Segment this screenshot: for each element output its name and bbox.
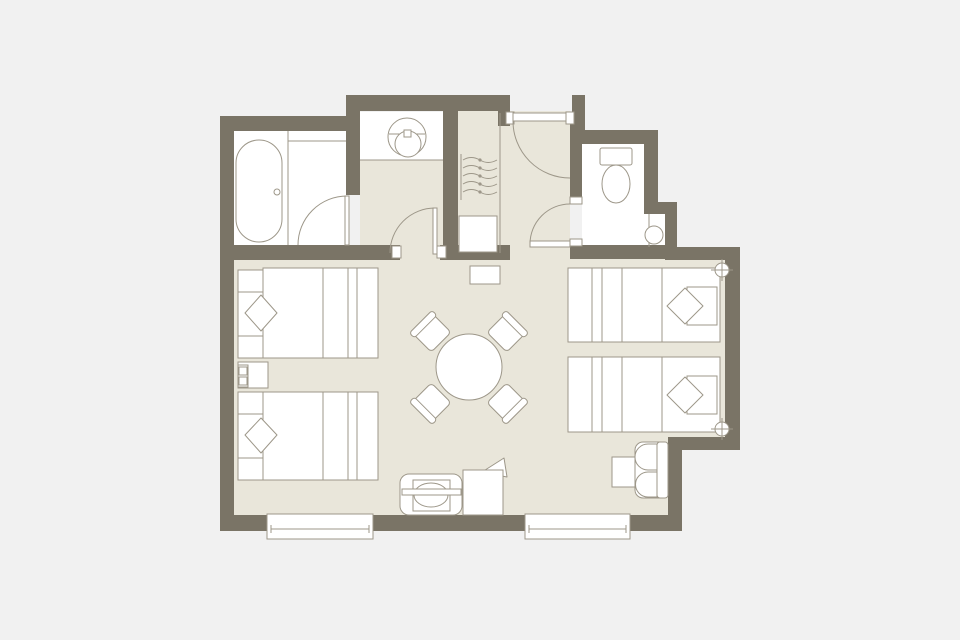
vanity-floor [360, 155, 443, 255]
toilet-bowl [602, 165, 630, 203]
chair-body [463, 470, 503, 515]
bathtub [236, 140, 282, 242]
wall-closet-left [443, 111, 458, 260]
side-table [612, 457, 635, 487]
nightstand [238, 362, 268, 388]
toiletroom-door-jamb-bottom [570, 239, 582, 246]
hanger-hook [478, 174, 481, 177]
wall-toiletroom-bottom [582, 245, 665, 259]
shoe-cabinet [470, 266, 500, 284]
wall-top-left [220, 116, 360, 131]
toilet-tank [600, 148, 632, 165]
bed-body [263, 268, 378, 358]
hand-basin [645, 226, 663, 244]
vanity-faucet [404, 130, 411, 137]
window-left [267, 514, 373, 539]
round-table [436, 334, 502, 400]
floor-plan-drawing [0, 0, 960, 640]
armchair-cushion [636, 472, 658, 497]
luggage-bench [400, 474, 462, 515]
wall-left [220, 116, 234, 531]
floor-plan-canvas [0, 0, 960, 640]
double-bed-1 [238, 268, 378, 358]
vanity-door-leaf [433, 208, 437, 254]
hanger-hook [478, 166, 481, 169]
twin-bed-1 [568, 268, 720, 342]
armchair-cushion [635, 444, 657, 470]
entry-door-leaf [513, 113, 566, 121]
toiletroom-door-jamb-top [570, 197, 582, 204]
double-bed-2 [238, 392, 378, 480]
window-right [525, 514, 630, 539]
vanity-door-jamb-right [437, 246, 446, 258]
bench-strap [402, 489, 461, 495]
hanger-hook [478, 182, 481, 185]
armchair [635, 442, 668, 498]
wall-bottom-right-step [682, 437, 740, 450]
wall-interior-left [234, 245, 400, 260]
vanity-door-jamb-left [392, 246, 401, 258]
twin-bed-2 [568, 357, 720, 432]
wall-right [725, 247, 740, 450]
bathroom-door-leaf [345, 196, 349, 245]
window-frame [525, 514, 630, 539]
entry-door-jamb-right [566, 112, 574, 124]
wall-right-lower [668, 437, 682, 531]
toiletroom-door-leaf [530, 241, 570, 247]
wall-toiletroom-right-upper [644, 130, 658, 214]
hanger-hook [478, 190, 481, 193]
window-frame [267, 514, 373, 539]
wall-toiletroom-left-lower [570, 246, 582, 259]
bed-body [263, 392, 378, 480]
closet-storage-box [459, 216, 497, 252]
wall-toiletroom-left-upper [570, 113, 582, 197]
wall-top-vanity [346, 95, 507, 111]
hanger-hook [478, 158, 481, 161]
armchair-back [657, 442, 668, 498]
